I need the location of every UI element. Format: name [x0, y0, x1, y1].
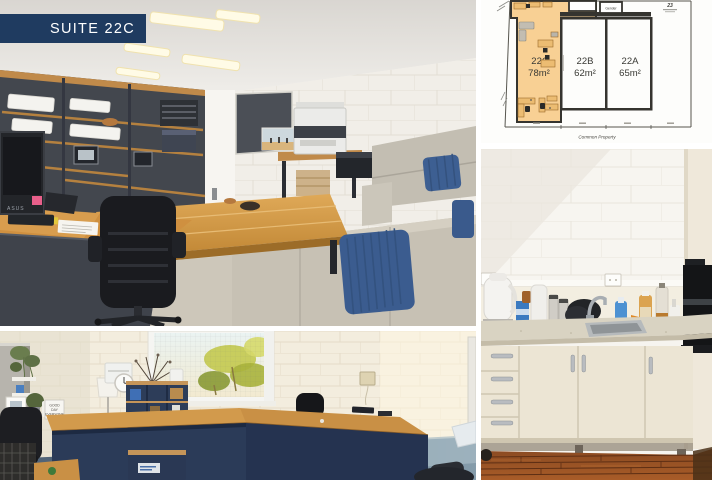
- cabinets: [481, 346, 693, 467]
- lot-number: 23: [666, 3, 673, 9]
- kitchen-illustration: [481, 149, 712, 480]
- cabinet-handle: [582, 355, 586, 372]
- cabinet-handle: [571, 355, 575, 372]
- white-canister: [531, 285, 547, 325]
- amber-jar: [522, 291, 531, 303]
- pink-sticky-note: [32, 196, 42, 205]
- suite-22b-id: 22B: [577, 56, 594, 67]
- picture-frame: [74, 146, 98, 164]
- monitor: ASUS: [0, 132, 44, 214]
- suite-badge: SUITE 22C: [0, 14, 146, 43]
- keyboard: [8, 213, 54, 226]
- letter-board-line-1: GOOD: [49, 404, 60, 408]
- wall-annotation: [563, 55, 564, 71]
- vase: [212, 188, 217, 200]
- suite-22a-id: 22A: [622, 56, 640, 67]
- small-frame: [134, 152, 152, 166]
- desk-phone: [352, 406, 374, 413]
- letter-board-line-2: DAY: [51, 408, 58, 412]
- beach-painting: [262, 128, 294, 150]
- paper-sheet: [58, 220, 99, 236]
- suite-22a-area-label: 65m²: [619, 68, 641, 79]
- blue-folder: [130, 389, 141, 400]
- photo-main-office[interactable]: ASUS SUITE 22C: [0, 0, 476, 326]
- cabinet-handle: [649, 357, 653, 374]
- suite-22c-area-label: 78m²: [528, 68, 550, 79]
- small-plant: [26, 393, 44, 409]
- suite-22b-area-label: 62m²: [574, 68, 596, 79]
- small-room: Gender: [600, 2, 622, 13]
- small-printer: [336, 152, 376, 178]
- property-photo-collage: ASUS SUITE 22C: [0, 0, 712, 480]
- photo-second-office[interactable]: GOOD DAY EVERYONE: [0, 331, 476, 480]
- blue-corduroy-pillow: [339, 228, 416, 315]
- main-office-illustration: ASUS: [0, 0, 476, 326]
- small-room-label: Gender: [605, 7, 617, 11]
- second-office-illustration: GOOD DAY EVERYONE: [0, 331, 476, 480]
- blue-cushion: [452, 200, 474, 238]
- power-outlet: [605, 274, 621, 286]
- suite-badge-label: SUITE 22C: [50, 21, 135, 37]
- mobile-pedestal: [128, 450, 186, 480]
- monitor-brand-text: ASUS: [7, 206, 25, 212]
- photocopier: [294, 102, 346, 154]
- bowl: [240, 202, 260, 211]
- glass-jars: [549, 295, 568, 323]
- floor-plan[interactable]: Gender 22C 78m² 22B 62m² 22A 65m²: [481, 0, 712, 143]
- photo-kitchen[interactable]: [481, 149, 712, 480]
- floor-plan-drawing: Gender 22C 78m² 22B 62m² 22A 65m²: [481, 0, 712, 143]
- document-trays: [160, 100, 198, 126]
- common-property-label: Common Property: [578, 135, 616, 140]
- copper-cup: [224, 198, 236, 204]
- copper-bowl: [102, 118, 118, 126]
- wire-basket: [0, 443, 36, 480]
- wicker-basket: [296, 170, 330, 196]
